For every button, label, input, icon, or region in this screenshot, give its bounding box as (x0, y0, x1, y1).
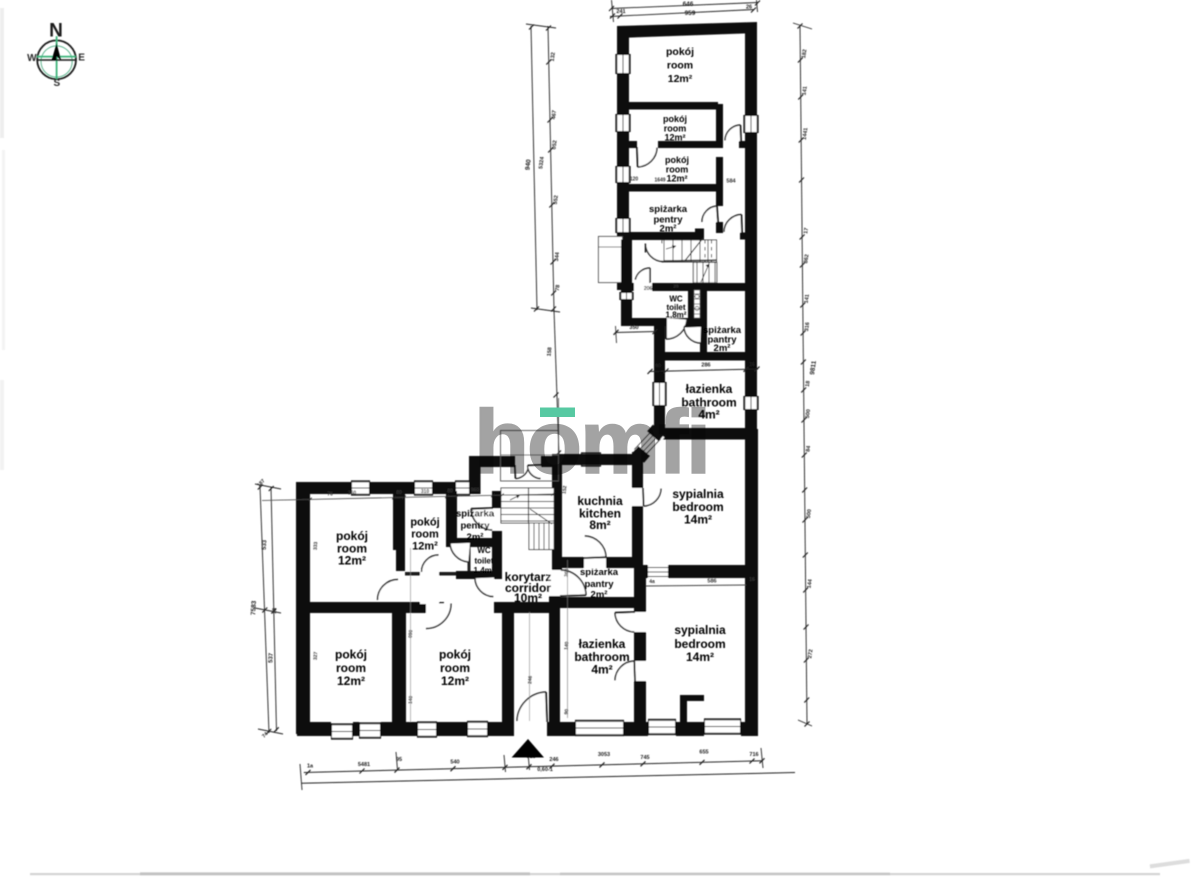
svg-text:052: 052 (552, 140, 559, 150)
svg-text:10m²: 10m² (514, 591, 542, 605)
svg-text:pokój: pokój (410, 517, 439, 529)
svg-text:room: room (440, 661, 470, 675)
svg-text:272: 272 (807, 649, 814, 659)
svg-text:537: 537 (268, 652, 275, 663)
svg-text:316: 316 (804, 322, 811, 332)
svg-text:12m²: 12m² (441, 674, 469, 688)
svg-text:bedroom: bedroom (674, 637, 725, 651)
svg-text:090: 090 (408, 629, 414, 638)
svg-text:N: N (49, 21, 63, 42)
svg-text:homfi: homfi (474, 393, 709, 493)
svg-text:14m²: 14m² (686, 650, 714, 664)
svg-text:WC: WC (477, 546, 491, 555)
svg-text:pokój: pokój (439, 648, 471, 662)
svg-text:206: 206 (644, 286, 653, 292)
svg-text:spiżarka: spiżarka (649, 204, 688, 215)
svg-text:12m²: 12m² (338, 554, 366, 568)
svg-text:141: 141 (804, 294, 811, 304)
svg-text:140: 140 (408, 695, 414, 704)
svg-text:467: 467 (551, 110, 558, 120)
svg-text:182: 182 (801, 49, 808, 59)
svg-text:room: room (667, 60, 693, 72)
svg-text:12m²: 12m² (668, 73, 693, 85)
svg-text:14m²: 14m² (684, 513, 712, 527)
svg-text:1,4m²: 1,4m² (474, 566, 495, 575)
svg-text:533: 533 (262, 539, 269, 550)
svg-text:room: room (411, 529, 439, 541)
svg-text:132: 132 (550, 52, 557, 62)
svg-text:158: 158 (546, 347, 553, 357)
svg-text:716: 716 (749, 752, 758, 758)
svg-text:241: 241 (616, 9, 625, 15)
svg-text:4m²: 4m² (591, 663, 612, 677)
svg-text:586: 586 (707, 579, 716, 585)
svg-text:584: 584 (726, 179, 736, 185)
svg-text:246: 246 (527, 675, 533, 684)
svg-text:646: 646 (683, 1, 694, 8)
svg-text:pokój: pokój (663, 114, 687, 124)
svg-text:80: 80 (447, 489, 453, 495)
svg-text:360: 360 (564, 568, 571, 577)
svg-text:90: 90 (655, 364, 661, 370)
svg-text:552: 552 (553, 195, 560, 205)
svg-text:7583: 7583 (250, 600, 258, 615)
svg-text:16: 16 (749, 362, 755, 368)
svg-text:500: 500 (805, 409, 812, 419)
svg-text:S: S (53, 78, 60, 89)
svg-text:2m²: 2m² (714, 343, 731, 354)
svg-text:80: 80 (396, 490, 402, 496)
svg-text:12m²: 12m² (412, 541, 438, 553)
svg-text:pantry: pantry (584, 579, 614, 590)
svg-text:344: 344 (554, 251, 561, 262)
svg-text:360: 360 (348, 491, 357, 497)
svg-text:655: 655 (699, 749, 708, 755)
svg-text:pokój: pokój (335, 648, 367, 662)
svg-text:E: E (78, 53, 85, 64)
svg-text:18: 18 (272, 608, 278, 614)
svg-text:pokój: pokój (665, 155, 689, 165)
svg-text:1,8m²: 1,8m² (666, 311, 687, 320)
svg-text:2m²: 2m² (660, 224, 677, 235)
svg-text:76: 76 (327, 492, 333, 498)
svg-text:5481: 5481 (358, 762, 370, 768)
svg-text:940: 940 (524, 159, 532, 171)
svg-text:78: 78 (555, 284, 562, 291)
svg-text:959: 959 (685, 10, 696, 17)
svg-text:327: 327 (313, 651, 319, 660)
svg-text:toilet: toilet (474, 557, 493, 566)
svg-text:spiżarka: spiżarka (456, 509, 495, 520)
svg-text:12m²: 12m² (666, 174, 687, 184)
svg-text:500: 500 (806, 509, 813, 519)
svg-text:sypialnia: sypialnia (674, 623, 726, 637)
svg-text:2m²: 2m² (467, 532, 484, 543)
svg-text:4a: 4a (649, 579, 655, 585)
svg-text:140: 140 (564, 641, 571, 650)
svg-text:12m²: 12m² (664, 133, 685, 143)
svg-text:141: 141 (802, 86, 809, 96)
svg-text:16: 16 (749, 577, 755, 583)
svg-text:room: room (336, 661, 366, 675)
svg-text:18: 18 (805, 380, 812, 387)
svg-text:310: 310 (421, 489, 430, 495)
svg-text:246: 246 (549, 757, 558, 763)
svg-text:350: 350 (629, 325, 638, 331)
svg-text:862: 862 (803, 254, 810, 264)
svg-text:1a: 1a (307, 763, 314, 769)
svg-text:1649: 1649 (654, 178, 665, 184)
svg-text:26: 26 (673, 284, 679, 290)
svg-text:spiżarka: spiżarka (580, 567, 619, 578)
svg-text:745: 745 (640, 755, 649, 761)
svg-text:120: 120 (630, 177, 639, 183)
svg-text:8m²: 8m² (589, 518, 610, 532)
svg-text:333: 333 (313, 541, 319, 550)
svg-text:12m²: 12m² (337, 674, 365, 688)
svg-text:17: 17 (803, 227, 810, 234)
svg-text:2m²: 2m² (591, 590, 608, 601)
svg-text:286: 286 (701, 363, 710, 369)
svg-text:pokój: pokój (666, 46, 694, 58)
svg-text:26: 26 (746, 5, 752, 11)
svg-text:łazienka: łazienka (579, 637, 626, 651)
svg-text:pentry: pentry (460, 521, 490, 532)
svg-text:90: 90 (564, 709, 571, 715)
svg-text:540: 540 (450, 760, 459, 766)
svg-text:3053: 3053 (598, 752, 610, 758)
svg-text:W: W (27, 53, 37, 64)
svg-text:0,60-1: 0,60-1 (537, 767, 553, 773)
